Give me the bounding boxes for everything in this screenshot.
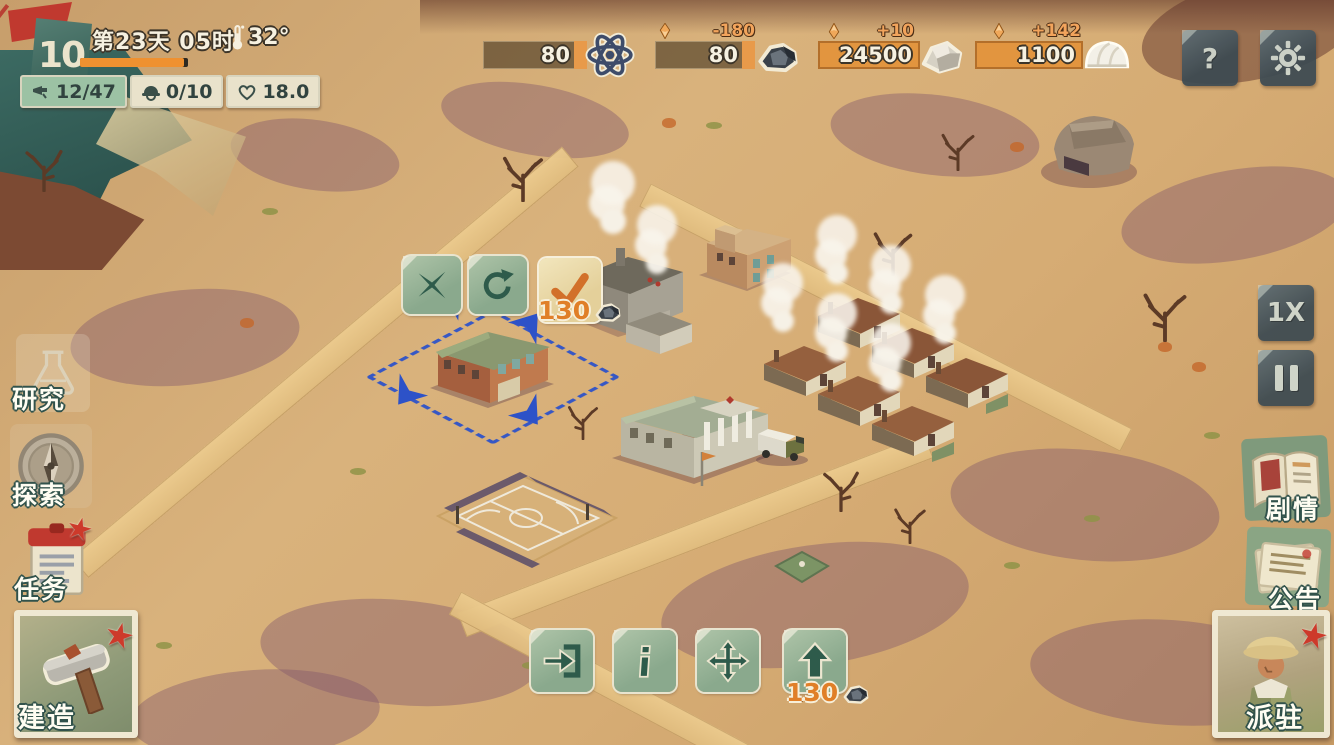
dead-tree xyxy=(935,125,981,171)
shrub xyxy=(1010,142,1024,152)
shrub xyxy=(1192,362,1206,372)
game-screen: 130 130 10 第23天 05时 32° 12/47 xyxy=(0,0,1334,745)
delta-down-icon xyxy=(659,23,671,39)
basketball-court[interactable] xyxy=(428,446,626,588)
shrub xyxy=(240,318,254,328)
pause-icon xyxy=(1275,365,1283,391)
research-label[interactable]: 研究 xyxy=(12,380,66,416)
dead-tree xyxy=(888,500,932,544)
dead-tree xyxy=(816,462,866,512)
grass-tuft xyxy=(706,122,722,129)
pause-button[interactable] xyxy=(1258,350,1314,406)
dead-tree xyxy=(866,222,920,276)
smoke-plume xyxy=(772,310,794,332)
help-button[interactable]: ? xyxy=(1182,30,1238,86)
stone-delta: +10 xyxy=(828,21,914,41)
terrain-patch xyxy=(226,109,404,202)
grass-tuft xyxy=(350,468,366,475)
coal-delta: -180 xyxy=(659,21,755,41)
grass-tuft xyxy=(1084,515,1100,522)
smoke-plume xyxy=(600,208,626,234)
workers-stat: 0/10 xyxy=(130,75,224,108)
terrain-patch xyxy=(66,278,305,397)
day-label: 第23天 xyxy=(92,30,171,55)
coal-bar: 80 xyxy=(655,41,755,69)
science-bar: 80 xyxy=(483,41,587,69)
level-progress-fill xyxy=(80,58,184,67)
workers-value: 0/10 xyxy=(166,81,213,103)
row-house[interactable] xyxy=(866,394,961,464)
info-icon xyxy=(624,640,666,682)
temperature: 32° xyxy=(230,24,290,51)
stone-value: 24500 xyxy=(839,43,920,67)
stone-delta-value: +10 xyxy=(876,21,914,41)
coal-icon xyxy=(840,681,872,705)
colony-stats: 12/47 0/10 18.0 xyxy=(20,75,320,108)
shrub xyxy=(662,118,676,128)
enter-building-button[interactable] xyxy=(531,630,593,692)
salt-value: 1100 xyxy=(1017,43,1083,67)
explore-label[interactable]: 探索 xyxy=(12,476,66,512)
smoke-plume xyxy=(880,370,902,392)
coal-delta-value: -180 xyxy=(712,21,755,41)
coal-icon xyxy=(592,299,624,323)
info-button[interactable] xyxy=(614,630,676,692)
truck[interactable] xyxy=(752,420,814,468)
helmet-icon xyxy=(141,83,161,101)
stone-bar: 24500 xyxy=(818,41,920,69)
morale-stat: 18.0 xyxy=(226,75,320,108)
cancel-placement-button[interactable] xyxy=(403,256,461,314)
grass-tuft xyxy=(1004,562,1020,569)
dead-tree xyxy=(495,146,551,202)
build-label[interactable]: 建造 xyxy=(18,696,76,735)
shed-building[interactable] xyxy=(620,300,698,358)
citizens-stat: 12/47 xyxy=(20,75,127,108)
move-icon xyxy=(706,639,750,683)
placement-cost-value: 130 xyxy=(538,296,590,325)
placement-cost: 130 xyxy=(538,296,624,325)
grass-tuft xyxy=(262,208,278,215)
smoke-plume xyxy=(880,292,902,314)
shrub xyxy=(1158,342,1172,352)
stone-icon xyxy=(916,35,968,77)
garden-plot[interactable] xyxy=(770,540,834,592)
dead-tree xyxy=(18,140,70,192)
delta-up-icon xyxy=(828,23,840,39)
level-number: 10 xyxy=(38,35,84,76)
move-building-button[interactable] xyxy=(697,630,759,692)
enter-icon xyxy=(541,640,583,682)
temperature-value: 32° xyxy=(248,25,290,50)
smoke-plume xyxy=(646,252,668,274)
settings-button[interactable] xyxy=(1260,30,1316,86)
date-time: 第23天 05时 xyxy=(92,24,235,56)
x-icon xyxy=(412,265,452,305)
salt-delta: +142 xyxy=(993,21,1081,41)
upgrade-cost: 130 xyxy=(786,678,872,707)
brick-house[interactable] xyxy=(695,203,803,295)
terrain-patch xyxy=(945,436,1225,574)
speed-label: 1X xyxy=(1267,298,1305,328)
rotate-icon xyxy=(479,266,517,304)
dispatch-label[interactable]: 派驻 xyxy=(1246,696,1304,735)
rotate-building-button[interactable] xyxy=(469,256,527,314)
story-label[interactable]: 剧情 xyxy=(1266,490,1320,526)
smoke-plume xyxy=(826,340,848,362)
upgrade-icon xyxy=(794,640,836,682)
gear-icon xyxy=(1270,40,1306,76)
question-icon: ? xyxy=(1202,42,1218,75)
salt-delta-value: +142 xyxy=(1031,21,1081,41)
pause-icon xyxy=(1290,365,1298,391)
citizens-value: 12/47 xyxy=(56,81,116,103)
upgrade-cost-value: 130 xyxy=(786,678,838,707)
atom-icon xyxy=(585,30,635,80)
speed-toggle-button[interactable]: 1X xyxy=(1258,285,1314,341)
coal-icon xyxy=(751,36,805,74)
tasks-label[interactable]: 任务 xyxy=(14,570,68,606)
grass-tuft xyxy=(1204,432,1220,439)
salt-bar: 1100 xyxy=(975,41,1083,69)
smoke-plume xyxy=(826,262,848,284)
bunker[interactable] xyxy=(1034,94,1156,192)
salt-icon xyxy=(1081,35,1133,73)
thermometer-icon xyxy=(230,24,245,51)
smoke-plume xyxy=(934,322,956,344)
heart-icon xyxy=(237,83,257,101)
morale-value: 18.0 xyxy=(262,81,309,103)
level-progress-bar xyxy=(80,58,188,67)
hour-label: 05时 xyxy=(179,30,235,55)
grass-tuft xyxy=(156,642,172,649)
dead-tree xyxy=(1135,282,1195,342)
whistle-icon xyxy=(31,84,51,100)
delta-up-icon xyxy=(993,23,1005,39)
